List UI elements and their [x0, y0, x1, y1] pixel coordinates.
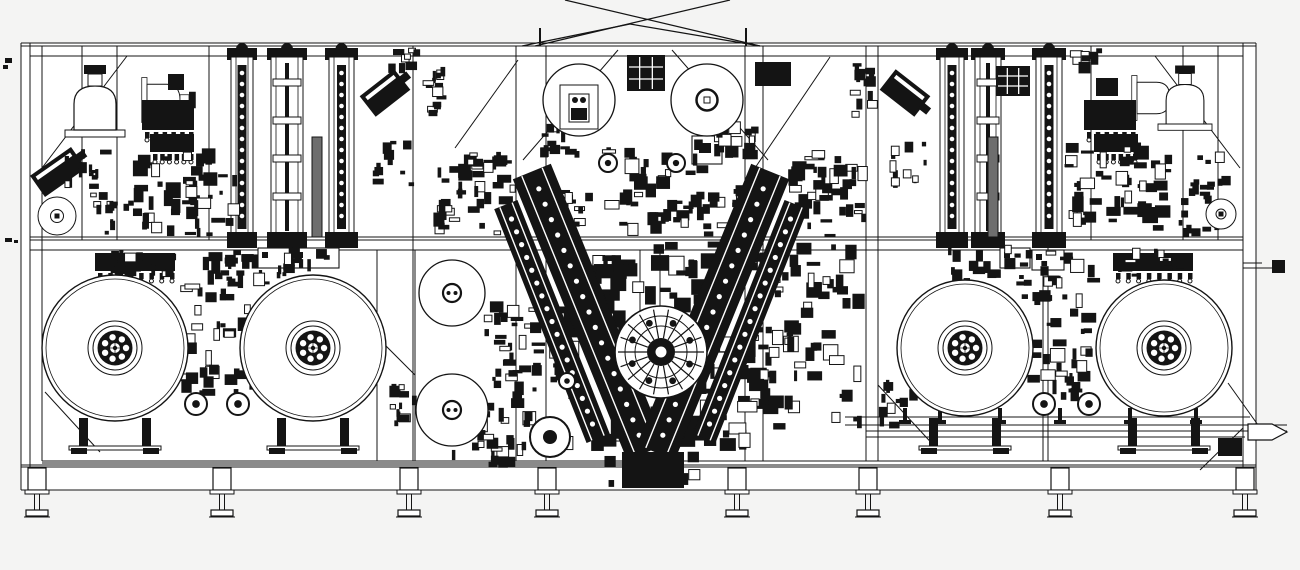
dancer-roller: [185, 393, 207, 415]
discharge-nozzle: [1248, 424, 1287, 440]
indexing-turret: [615, 306, 707, 398]
unwind-reel-large: [42, 275, 188, 421]
leveling-foot: [209, 468, 235, 517]
dancer-roller: [667, 154, 685, 172]
edge-mark: [3, 65, 8, 69]
dancer-roller: [530, 417, 570, 457]
leveling-foot: [1232, 468, 1258, 517]
grid-box: [627, 55, 665, 91]
upper-reel-left: [543, 64, 615, 136]
rail-column-right: [988, 137, 998, 237]
upper-reel-right: [671, 64, 743, 136]
dancer-roller: [227, 393, 249, 415]
dancer-roller: [599, 154, 617, 172]
process-reel-medium: [416, 374, 488, 446]
rail-column-right: [936, 43, 968, 248]
leveling-foot: [855, 468, 881, 517]
leveling-foot: [396, 468, 422, 517]
dancer-roller: [1078, 393, 1100, 415]
leveling-foot: [24, 468, 50, 517]
unwind-reel-large: [897, 280, 1033, 416]
solid-box: [699, 143, 711, 153]
process-reel-medium: [419, 260, 485, 326]
edge-mark: [5, 58, 12, 63]
edge-mark: [14, 240, 18, 243]
unwind-reel-large: [1096, 280, 1232, 416]
guide-ring: [38, 197, 76, 235]
machine-line-drawing: [0, 0, 1300, 570]
rail-column-right: [1032, 43, 1066, 248]
edge-mark: [5, 238, 12, 242]
machine-drawing-stage: [0, 0, 1300, 570]
dancer-roller: [559, 373, 575, 389]
rail-column-left: [267, 43, 307, 248]
rail-column-left: [227, 43, 257, 248]
leveling-foot: [1047, 468, 1073, 517]
unwind-reel-large: [240, 275, 386, 421]
leveling-foot: [534, 468, 560, 517]
grid-box: [996, 66, 1030, 96]
solid-box: [1218, 438, 1242, 456]
guide-ring: [1206, 199, 1236, 229]
solid-box: [168, 74, 184, 90]
dancer-roller: [1033, 393, 1055, 415]
solid-box: [571, 108, 587, 120]
rail-column-left: [325, 43, 358, 248]
leveling-foot: [724, 468, 750, 517]
solid-box: [622, 452, 684, 488]
roof-x-brace: [522, 0, 760, 46]
rail-column-left: [312, 137, 322, 237]
solid-box: [1096, 78, 1118, 96]
solid-box: [755, 62, 791, 86]
